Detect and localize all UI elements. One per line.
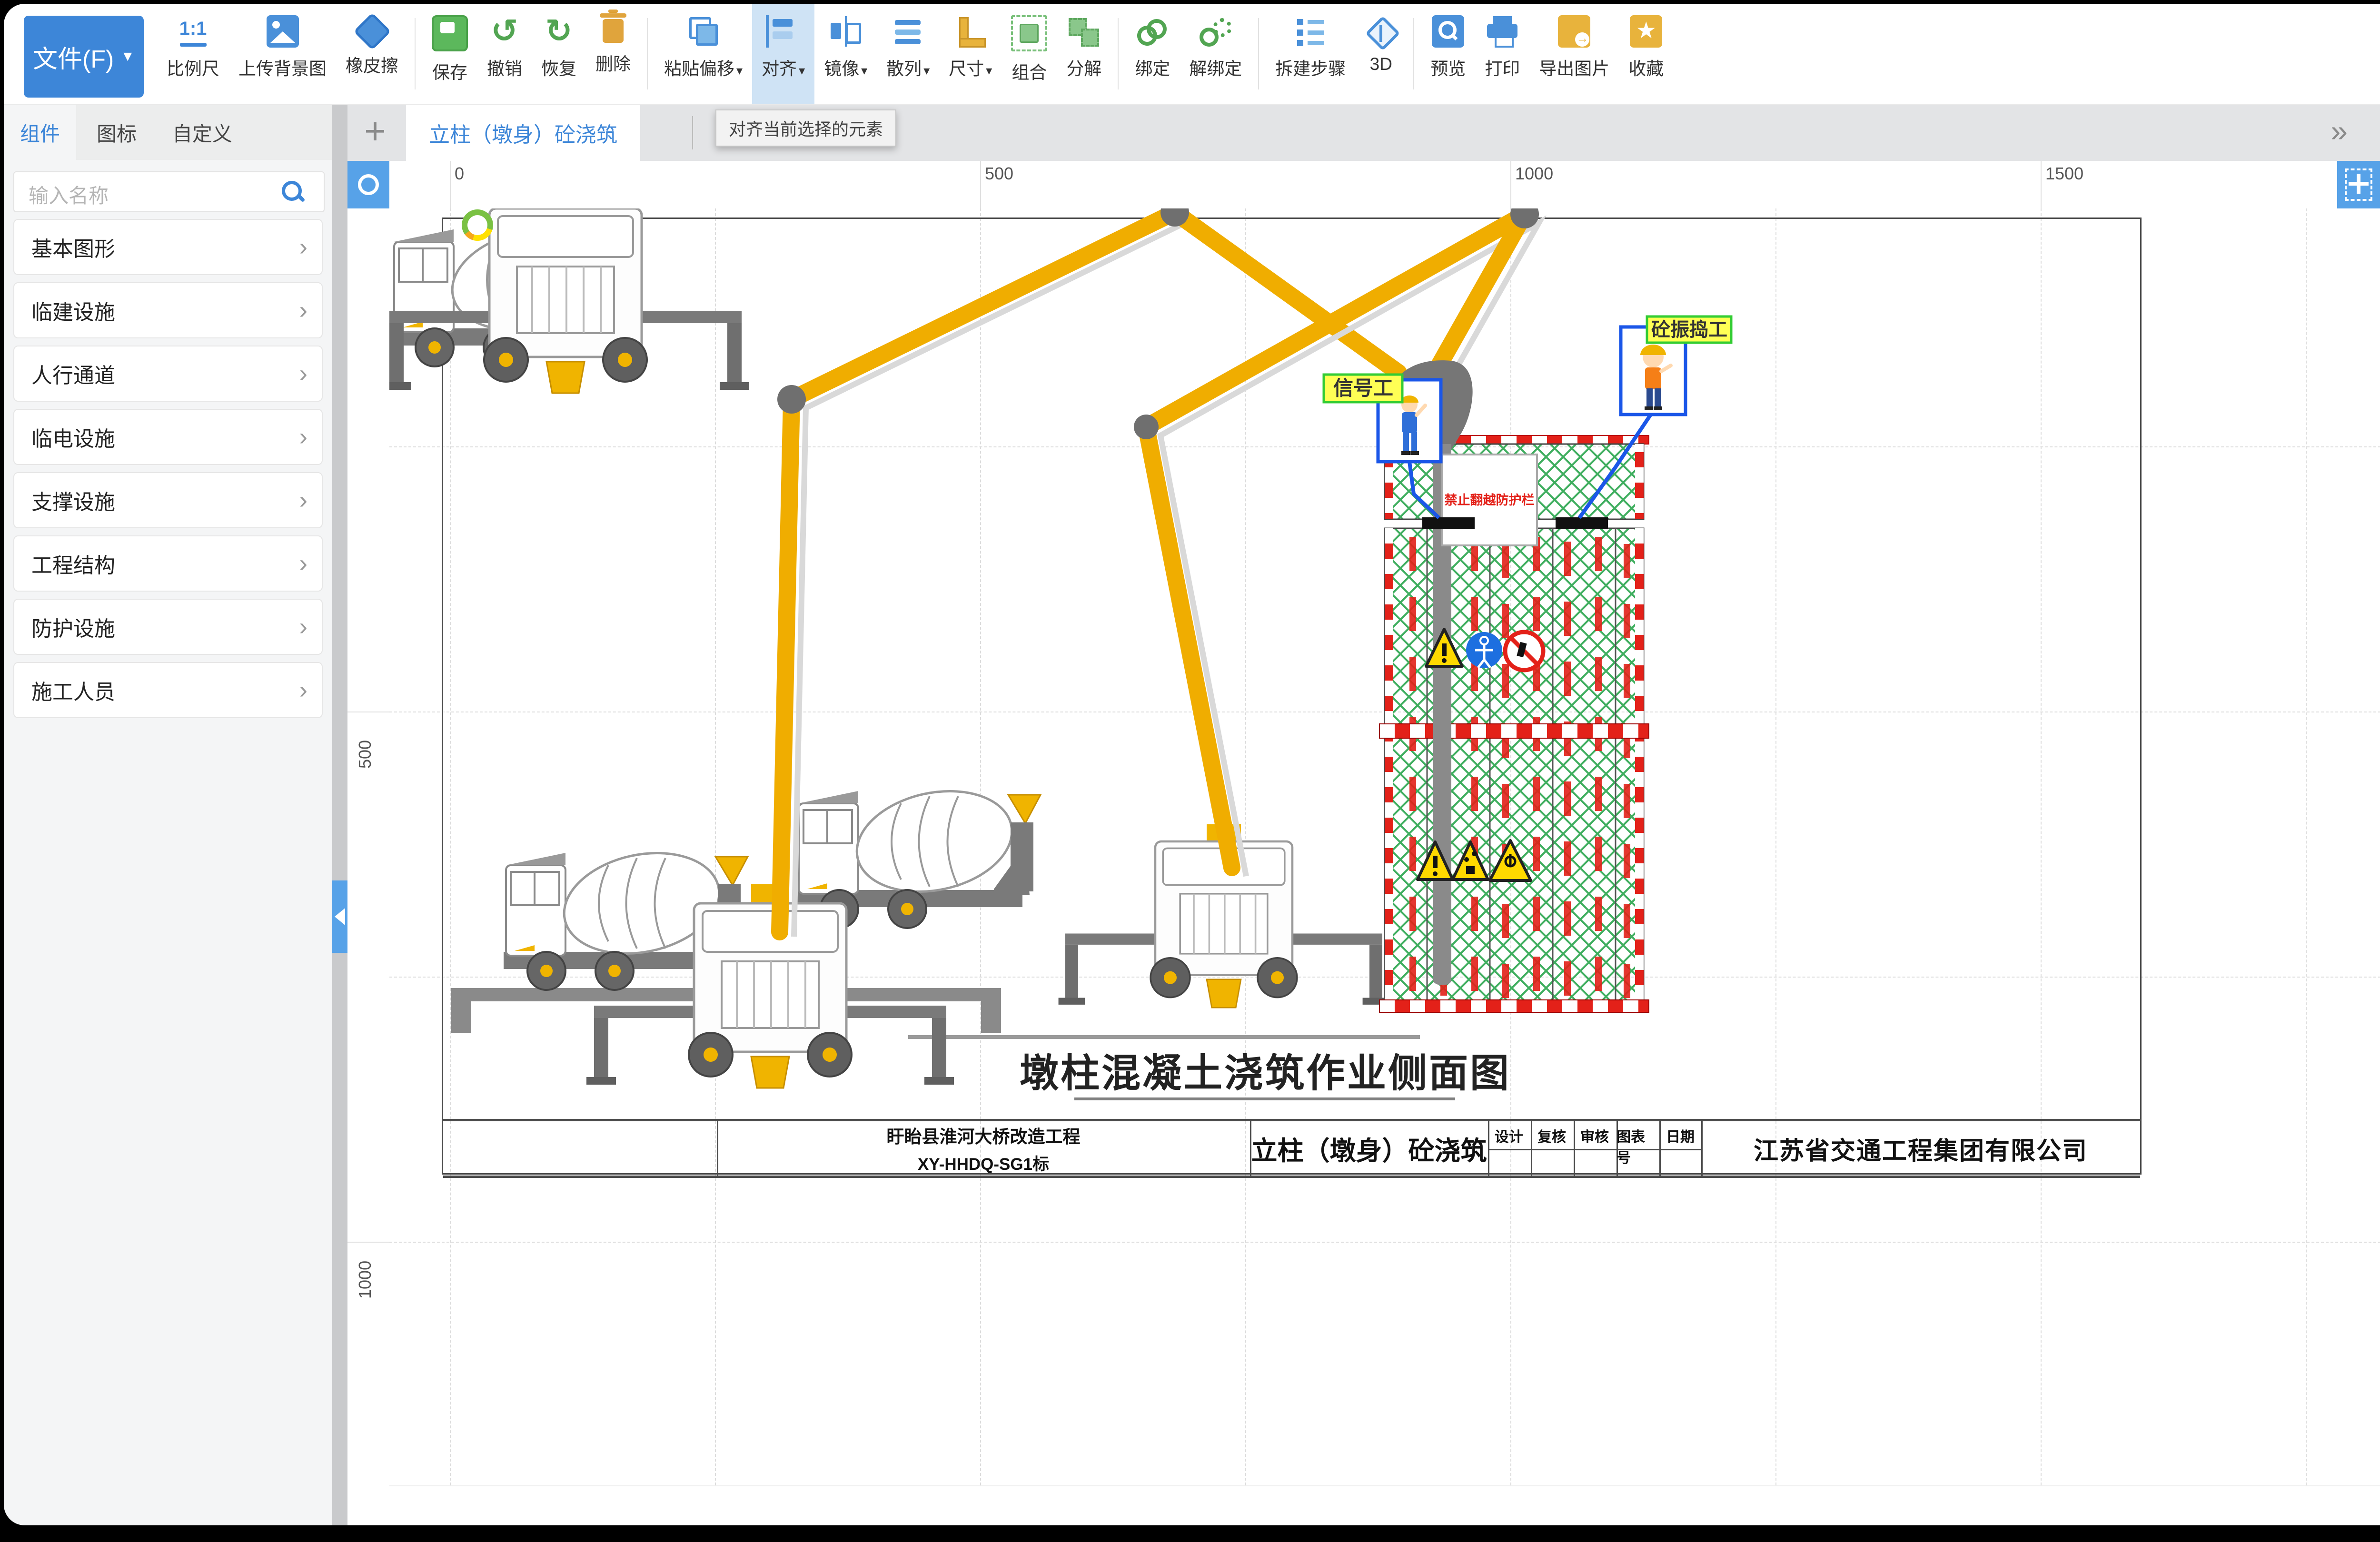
bearing-pad — [1422, 517, 1475, 529]
tool-label: 撤销 — [487, 54, 522, 80]
category-label: 防护设施 — [31, 612, 115, 642]
ruler-label: 500 — [985, 164, 1013, 184]
chevron-right-icon: › — [299, 549, 307, 578]
toolbar-group: 绑定解绑定 — [1125, 4, 1251, 104]
file-menu-label: 文件(F) — [33, 39, 114, 75]
favorite-button[interactable]: 收藏 — [1619, 4, 1673, 104]
ruler-tick — [347, 712, 389, 712]
category-label: 工程结构 — [31, 548, 115, 579]
eraser-icon — [353, 12, 391, 50]
chevron-right-icon: › — [299, 233, 307, 261]
toolbar-separator — [647, 18, 648, 89]
vertical-ruler[interactable]: 5001000 — [347, 208, 390, 1485]
toolbar-separator — [1118, 18, 1119, 89]
chevron-right-icon: › — [299, 676, 307, 704]
ungroup-button[interactable]: 分解 — [1057, 4, 1111, 104]
category-label: 人行通道 — [31, 358, 115, 389]
sidebar-category-8[interactable]: 施工人员› — [13, 662, 323, 718]
toolbar-groups: 比例尺上传背景图橡皮擦保存撤销恢复删除粘贴偏移▾对齐▾镜像▾散列▾尺寸▾组合分解… — [157, 4, 1673, 104]
tab-icons[interactable]: 图标 — [76, 105, 157, 160]
redo-button[interactable]: 恢复 — [532, 4, 586, 104]
tool-label: 对齐▾ — [762, 54, 805, 80]
search-placeholder: 输入名称 — [29, 180, 109, 209]
scatter-button[interactable]: 散列▾ — [877, 4, 939, 104]
tool-label: 拆建步骤 — [1275, 54, 1346, 80]
unbind-button[interactable]: 解绑定 — [1180, 4, 1251, 104]
image-icon — [267, 15, 299, 48]
tab-components[interactable]: 组件 — [4, 105, 76, 160]
align-tooltip: 对齐当前选择的元素 — [715, 109, 896, 147]
crosshair-icon — [2345, 168, 2372, 201]
paste-icon — [687, 15, 720, 48]
chevron-right-icon: › — [299, 486, 307, 514]
tab-overflow-icon[interactable]: » — [2330, 105, 2348, 157]
barrier-sign-text: 禁止翻越防护栏 — [1445, 493, 1535, 507]
toolbar-group: 粘贴偏移▾对齐▾镜像▾散列▾尺寸▾组合分解 — [654, 4, 1111, 104]
tool-label: 解绑定 — [1189, 54, 1242, 80]
tab-separator — [692, 116, 693, 149]
component-sidebar: 组件 图标 自定义 输入名称 基本图形›临建设施›人行通道›临电设施›支撑设施›… — [4, 105, 332, 1525]
tab-drawing[interactable]: 立柱（墩身）砼浇筑 — [406, 105, 640, 161]
toolbar-group: 保存撤销恢复删除 — [422, 4, 640, 104]
tool-label: 上传背景图 — [238, 54, 327, 80]
tool-label: 打印 — [1485, 54, 1520, 80]
tool-label: 收藏 — [1628, 54, 1664, 80]
toolbar-separator — [1258, 18, 1259, 89]
ruler-label: 1000 — [1515, 164, 1553, 184]
component-category-list: 基本图形›临建设施›人行通道›临电设施›支撑设施›工程结构›防护设施›施工人员› — [4, 219, 332, 1525]
scale-ruler-button[interactable]: 比例尺 — [157, 4, 229, 104]
app-window: 文件(F) ▼ 比例尺上传背景图橡皮擦保存撤销恢复删除粘贴偏移▾对齐▾镜像▾散列… — [4, 4, 2380, 1525]
toolbar-group: 预览打印导出图片收藏 — [1421, 4, 1673, 104]
star-icon — [1630, 15, 1662, 48]
vibrator-worker: 砼振捣工 — [1579, 316, 1731, 518]
tool-label: 删除 — [595, 49, 631, 75]
chevron-right-icon: › — [299, 296, 307, 325]
ruler-tick — [347, 1242, 389, 1243]
save-button[interactable]: 保存 — [422, 4, 477, 104]
bearing-pad — [1556, 517, 1608, 529]
sidebar-category-4[interactable]: 临电设施› — [13, 409, 323, 465]
app-logo — [462, 209, 493, 241]
tool-label: 比例尺 — [167, 54, 219, 80]
eraser-button[interactable]: 橡皮擦 — [336, 4, 408, 104]
ungroup-icon — [1068, 15, 1100, 48]
search-input[interactable]: 输入名称 — [13, 171, 325, 212]
canvas-viewport[interactable]: 墩柱混凝土浇筑作业侧面图 盱眙县淮河大桥改造工程 XY-HHDQ-SG1标 — [389, 208, 2380, 1486]
toolbar: 文件(F) ▼ 比例尺上传背景图橡皮擦保存撤销恢复删除粘贴偏移▾对齐▾镜像▾散列… — [4, 4, 2380, 105]
align-button[interactable]: 对齐▾ — [752, 4, 814, 104]
export-icon — [1558, 15, 1590, 48]
ruler-tick — [980, 161, 981, 208]
ruler-origin-button[interactable] — [347, 161, 389, 208]
steps-icon — [1294, 15, 1327, 48]
undo-button[interactable]: 撤销 — [477, 4, 532, 104]
ruler-tick — [1510, 161, 1511, 208]
view-3d-button[interactable]: 3D — [1355, 4, 1407, 104]
safety-signs-upper — [1426, 629, 1543, 670]
canvas-area: + 立柱（墩身）砼浇筑 » 对齐当前选择的元素 050010001500 500… — [347, 105, 2380, 1525]
mirror-button[interactable]: 镜像▾ — [814, 4, 877, 104]
signal-worker-label: 信号工 — [1333, 377, 1393, 399]
export-image-button[interactable]: 导出图片 — [1529, 4, 1619, 104]
tool-label: 尺寸▾ — [949, 54, 992, 80]
fit-view-button[interactable] — [2337, 161, 2380, 208]
toolbar-group: 比例尺上传背景图橡皮擦 — [157, 4, 408, 104]
category-label: 施工人员 — [31, 675, 115, 705]
mirror-icon — [830, 15, 862, 48]
ruler-label: 0 — [455, 164, 464, 184]
ruler-tick — [2041, 161, 2042, 208]
trash-icon — [603, 19, 624, 43]
toolbar-separator — [415, 18, 416, 89]
preview-button[interactable]: 预览 — [1421, 4, 1475, 104]
chevron-right-icon: › — [299, 359, 307, 388]
dimension-icon — [954, 15, 987, 48]
category-label: 临建设施 — [31, 295, 115, 326]
category-label: 支撑设施 — [31, 485, 115, 515]
group-button[interactable]: 组合 — [1002, 4, 1057, 104]
tool-label: 保存 — [432, 58, 468, 84]
tool-label: 镜像▾ — [824, 54, 867, 80]
add-tab-button[interactable]: + — [356, 105, 394, 161]
sidebar-category-5[interactable]: 支撑设施› — [13, 472, 323, 528]
sidebar-category-7[interactable]: 防护设施› — [13, 599, 323, 655]
canvas-tab-bar: + 立柱（墩身）砼浇筑 » — [347, 105, 2380, 162]
drawing-scene[interactable]: 禁止翻越防护栏 — [389, 208, 2380, 1485]
tool-label: 导出图片 — [1539, 54, 1609, 80]
group-icon — [1011, 15, 1047, 51]
tool-label: 粘贴偏移▾ — [664, 54, 743, 80]
ruler-label: 500 — [355, 740, 375, 769]
preview-icon — [1432, 15, 1464, 48]
sidebar-collapse-handle[interactable] — [332, 880, 347, 953]
category-label: 基本图形 — [31, 232, 115, 262]
sidebar-category-3[interactable]: 人行通道› — [13, 346, 323, 402]
print-button[interactable]: 打印 — [1475, 4, 1529, 104]
horizontal-ruler[interactable]: 050010001500 — [389, 161, 2337, 209]
upload-background-button[interactable]: 上传背景图 — [229, 4, 336, 104]
bind-icon — [1136, 15, 1169, 48]
tool-label: 散列▾ — [886, 54, 930, 80]
print-icon — [1486, 15, 1518, 48]
tool-label: 橡皮擦 — [346, 51, 398, 77]
ruler-label: 1500 — [2045, 164, 2083, 184]
tool-label: 3D — [1365, 54, 1397, 74]
vibrator-worker-label: 砼振捣工 — [1651, 319, 1727, 340]
align-icon — [766, 15, 801, 48]
undo-icon — [488, 15, 521, 48]
redo-icon — [543, 15, 575, 48]
sidebar-category-2[interactable]: 临建设施› — [13, 282, 323, 338]
bind-button[interactable]: 绑定 — [1125, 4, 1180, 104]
file-menu-button[interactable]: 文件(F) ▼ — [24, 16, 144, 98]
tool-label: 恢复 — [541, 54, 576, 80]
tool-label: 预览 — [1430, 54, 1466, 80]
save-icon — [432, 15, 468, 51]
delete-button[interactable]: 删除 — [586, 4, 640, 104]
sidebar-divider — [332, 105, 347, 1525]
unbind-icon — [1200, 15, 1232, 48]
ruler-tick — [450, 161, 451, 208]
chevron-down-icon: ▼ — [120, 49, 135, 65]
scatter-icon — [892, 15, 924, 48]
ruler-label: 1000 — [355, 1261, 375, 1299]
sidebar-category-6[interactable]: 工程结构› — [13, 535, 323, 592]
chevron-left-icon — [335, 908, 345, 925]
sidebar-tabs: 组件 图标 自定义 — [4, 105, 332, 160]
barrier-sign: 禁止翻越防护栏 — [1442, 455, 1537, 545]
tool-label: 分解 — [1066, 54, 1101, 80]
cube-icon — [1365, 15, 1397, 48]
tool-label: 绑定 — [1135, 54, 1170, 80]
dimension-button[interactable]: 尺寸▾ — [939, 4, 1002, 104]
demolish-steps-button[interactable]: 拆建步骤 — [1266, 4, 1355, 104]
paste-offset-button[interactable]: 粘贴偏移▾ — [654, 4, 752, 104]
toolbar-group: 拆建步骤3D — [1266, 4, 1407, 104]
category-label: 临电设施 — [31, 422, 115, 452]
one2one-icon — [177, 15, 209, 48]
chevron-right-icon: › — [299, 613, 307, 641]
search-icon[interactable] — [282, 181, 302, 201]
toolbar-separator — [1413, 18, 1414, 89]
chevron-right-icon: › — [299, 423, 307, 451]
tab-custom[interactable]: 自定义 — [157, 105, 248, 160]
tool-label: 组合 — [1011, 58, 1047, 84]
sidebar-category-1[interactable]: 基本图形› — [13, 219, 323, 275]
